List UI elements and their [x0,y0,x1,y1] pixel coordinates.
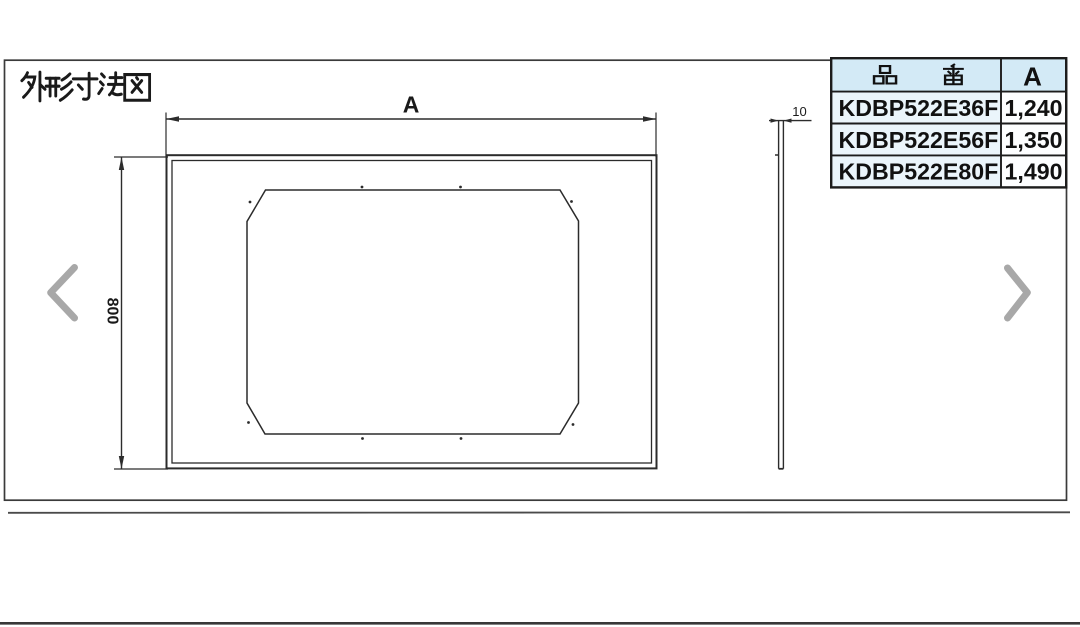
svg-text:A: A [403,92,420,118]
svg-text:KDBP522E80F: KDBP522E80F [839,159,999,185]
svg-text:A: A [1023,62,1042,92]
svg-text:800: 800 [104,298,121,325]
svg-text:10: 10 [792,104,806,119]
svg-text:KDBP522E36F: KDBP522E36F [839,95,999,121]
svg-text:KDBP522E56F: KDBP522E56F [839,127,999,153]
svg-text:1,490: 1,490 [1004,159,1062,185]
svg-text:1,240: 1,240 [1004,95,1062,121]
svg-text:1,350: 1,350 [1004,127,1062,153]
